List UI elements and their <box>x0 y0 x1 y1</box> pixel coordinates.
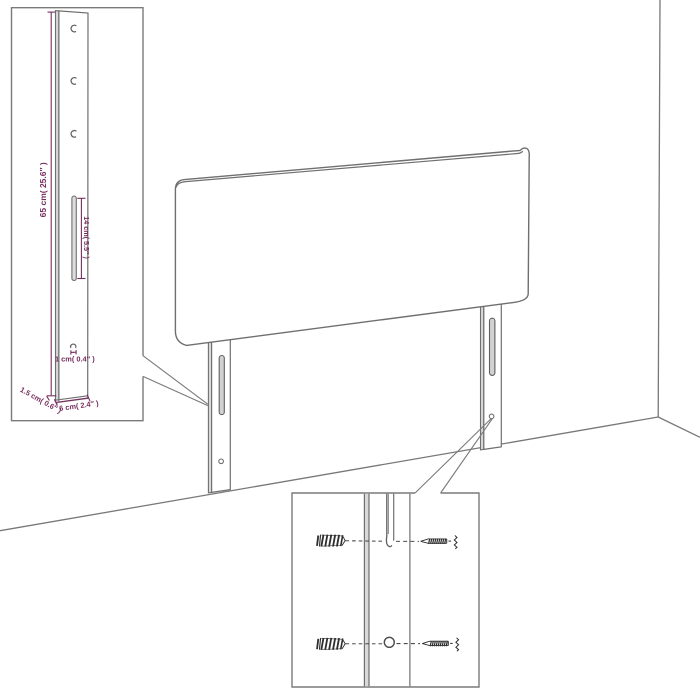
svg-text:14 cm( 5.5″ ): 14 cm( 5.5″ ) <box>82 216 91 259</box>
svg-text:1 cm( 0.4″ ): 1 cm( 0.4″ ) <box>55 355 95 364</box>
svg-text:65 cm( 25.6″ ): 65 cm( 25.6″ ) <box>38 162 48 217</box>
